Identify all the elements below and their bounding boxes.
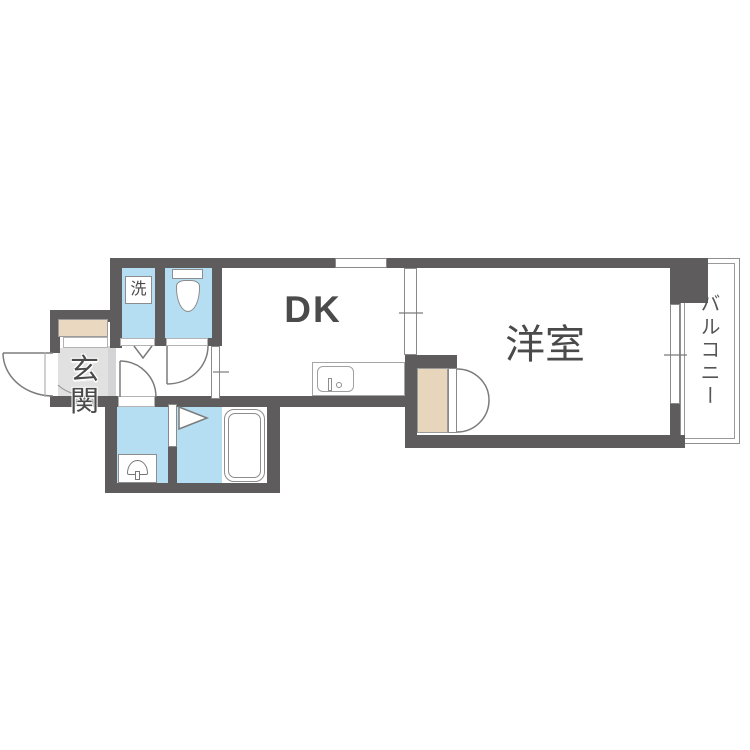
kitchen-faucet	[328, 378, 332, 391]
laundry-folding-door	[134, 346, 152, 358]
bathroom-door-panel	[168, 404, 177, 447]
western-room-label: 洋室	[493, 323, 597, 367]
balcony-label: バルコニー	[697, 280, 719, 420]
wall-washroom-bath-divider	[168, 447, 177, 483]
wall-toilet-dk-divider	[212, 258, 222, 346]
bathtub-inner	[228, 413, 261, 478]
toilet-door-threshold	[166, 338, 208, 346]
closet-door-arc-bottom	[457, 400, 489, 432]
washing-machine-box: 洗	[125, 276, 152, 304]
wall-bath-right	[267, 396, 280, 493]
washroom-door-arc	[120, 361, 156, 397]
laundry-box-label: 洗	[130, 281, 146, 299]
wall-closet-top	[405, 355, 457, 368]
toilet-door-arc	[167, 346, 208, 384]
dk-window	[335, 258, 387, 268]
entrance-door-arc	[3, 353, 53, 396]
closet-door-panel	[448, 368, 457, 433]
wall-top	[110, 258, 670, 268]
wall-western-bottom	[405, 435, 685, 448]
washroom-doorway	[118, 396, 155, 407]
kitchen-sink	[317, 366, 354, 392]
bathroom-floor	[177, 407, 222, 483]
closet-door-arc-top	[457, 369, 489, 400]
wall-laundry-toilet-divider	[155, 268, 165, 346]
shoe-cabinet	[58, 319, 108, 337]
kitchen-sink-drain	[336, 382, 342, 388]
toilet-tank	[172, 269, 203, 279]
floor-plan: 洗	[0, 0, 750, 750]
closet	[417, 368, 448, 433]
wash-basin-faucet	[135, 471, 140, 480]
western-window	[670, 304, 680, 404]
dk-label: DK	[278, 290, 348, 331]
entrance-label: 玄関	[56, 355, 114, 419]
dk-western-sliding-door	[404, 268, 417, 355]
shoe-cabinet-threshold	[63, 337, 108, 348]
hall-dk-opening	[211, 346, 220, 399]
wall-bath-bottom	[105, 483, 280, 493]
wall-laundry-left	[110, 258, 122, 348]
laundry-door-threshold	[120, 338, 155, 346]
